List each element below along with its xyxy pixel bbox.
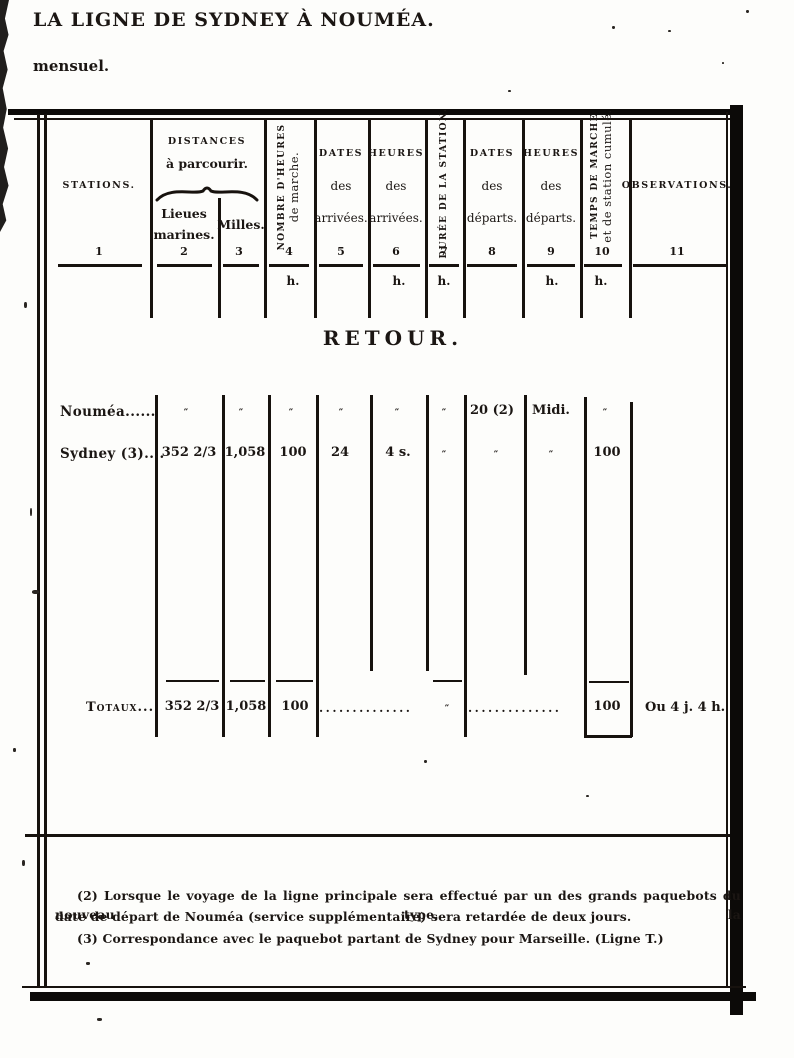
table-border-top: [8, 109, 740, 115]
col-dates-dep-line1: DATES: [470, 148, 514, 159]
cell-noumea-heures-arr: ″: [395, 408, 399, 419]
scan-speck: [32, 590, 39, 594]
total-dot-leader-2: ..............: [468, 701, 580, 715]
cell-sydney-dates-arr: 24: [331, 445, 349, 460]
header-underline: [269, 264, 309, 267]
total-heures-marche: 100: [281, 699, 308, 714]
col-temps-marche-line2: et de station cumulé.: [600, 109, 614, 242]
scan-speck: [13, 748, 16, 752]
col-duree-station-label: DURÉE DE LA STATION.: [439, 108, 449, 259]
col-distances-line1: DISTANCES: [168, 136, 246, 147]
cell-sydney-temps: 100: [593, 445, 620, 460]
col-heures-dep-line2: des: [541, 179, 562, 193]
cell-sydney-duree: ″: [442, 450, 446, 461]
cell-sydney-dates-dep: ″: [494, 450, 498, 461]
scan-edge-artifact: [0, 0, 9, 232]
col-num-5: 5: [337, 245, 345, 258]
col-dates-arr-line2: des: [331, 179, 352, 193]
header-rule: [463, 120, 466, 318]
col-num-3: 3: [235, 245, 243, 258]
col-dates-dep-line2: des: [482, 179, 503, 193]
cell-sydney-heures-dep: ″: [549, 450, 553, 461]
header-rule: [218, 198, 221, 318]
total-box-bottom: [584, 735, 632, 738]
col-heures-dep-line1: HEURES: [523, 148, 579, 159]
total-observation: Ou 4 j. 4 h.: [645, 700, 725, 715]
col-heures-dep-line3: départs.: [526, 211, 576, 225]
document-page: LA LIGNE DE SYDNEY À NOUMÉA. mensuel. ST…: [0, 0, 794, 1058]
col-num-7: 7: [440, 245, 448, 258]
station-sydney: Sydney (3)....: [60, 446, 165, 462]
col-duree-station-text: DURÉE DE LA STATION.: [439, 108, 449, 259]
col-heures-marche-line1: NOMBRE D'HEURES: [277, 124, 287, 251]
total-rule: [433, 680, 462, 682]
cell-sydney-lieues: 352 2/3: [162, 445, 217, 460]
scan-speck: [97, 1018, 102, 1021]
total-duree: ″: [445, 704, 449, 715]
table-border-bottom: [30, 992, 756, 1001]
unit-h-col6: h.: [393, 274, 406, 288]
col-stations-label: STATIONS.: [63, 180, 136, 191]
scan-speck: [746, 10, 749, 13]
table-rule-middle: [25, 834, 730, 837]
cell-sydney-heures-marche: 100: [279, 445, 306, 460]
col-dates-arr-line1: DATES: [319, 148, 363, 159]
table-border-left-inner: [44, 114, 47, 988]
cell-noumea-heures-dep: Midi.: [532, 403, 570, 418]
page-title: LA LIGNE DE SYDNEY À NOUMÉA.: [33, 9, 435, 31]
col-distances-line2: à parcourir.: [166, 156, 248, 171]
scan-speck: [722, 62, 724, 64]
col-heures-arr-line2: des: [386, 179, 407, 193]
section-title-retour: RETOUR.: [323, 326, 463, 350]
header-underline: [157, 264, 212, 267]
cell-sydney-milles: 1,058: [225, 445, 266, 460]
cell-noumea-duree: ″: [442, 408, 446, 419]
col-heures-arr-line3: arrivées.: [369, 211, 422, 225]
unit-h-col10: h.: [595, 274, 608, 288]
cell-noumea-lieues: ″: [184, 408, 188, 419]
body-rule: [524, 395, 527, 675]
cell-sydney-heures-arr: 4 s.: [385, 445, 410, 460]
scan-speck: [86, 962, 90, 965]
col-num-2: 2: [180, 245, 188, 258]
total-rule: [230, 680, 265, 682]
scan-speck: [24, 302, 27, 308]
scan-speck: [22, 860, 25, 866]
cell-noumea-heures-marche: ″: [289, 408, 293, 419]
col-num-8: 8: [488, 245, 496, 258]
header-underline: [633, 264, 728, 267]
cell-noumea-milles: ″: [239, 408, 243, 419]
col-num-1: 1: [95, 245, 103, 258]
header-underline: [373, 264, 420, 267]
unit-h-col7: h.: [438, 274, 451, 288]
header-underline: [467, 264, 517, 267]
header-underline: [527, 264, 575, 267]
col-lieues-line1: Lieues: [161, 206, 207, 221]
table-border-left-outer: [37, 114, 40, 988]
total-lieues: 352 2/3: [165, 699, 220, 714]
unit-h-col9: h.: [546, 274, 559, 288]
col-num-4: 4: [285, 245, 293, 258]
col-num-9: 9: [547, 245, 555, 258]
col-num-11: 11: [669, 245, 684, 258]
col-temps-marche-label: TEMPS DE MARCHE et de station cumulé.: [590, 109, 614, 242]
scan-speck: [424, 760, 427, 763]
body-rule: [316, 395, 319, 737]
unit-h-col4: h.: [287, 274, 300, 288]
distances-brace: [154, 183, 260, 203]
body-rule: [464, 395, 467, 737]
header-rule: [425, 120, 428, 318]
cell-noumea-dates-dep: 20 (2): [470, 403, 514, 418]
body-rule: [426, 395, 429, 671]
header-rule: [150, 120, 153, 318]
total-dot-leader-1: ..............: [319, 701, 423, 715]
footnote-2-line2: date de départ de Nouméa (service supplé…: [55, 907, 741, 926]
body-rule: [268, 395, 271, 737]
body-rule: [370, 395, 373, 671]
col-heures-arr-line1: HEURES: [368, 148, 424, 159]
col-temps-marche-line1: TEMPS DE MARCHE: [590, 109, 600, 242]
totals-label: Totaux...: [86, 700, 154, 715]
total-rule: [166, 680, 219, 682]
page-subtitle: mensuel.: [33, 57, 109, 75]
total-rule: [589, 681, 629, 683]
scan-speck: [668, 30, 671, 32]
col-heures-marche-line2: de marche.: [287, 124, 301, 251]
col-num-6: 6: [392, 245, 400, 258]
total-temps: 100: [593, 699, 620, 714]
table-border-bottom-inner: [22, 986, 746, 988]
col-milles-label: Milles.: [217, 217, 264, 232]
col-lieues-line2: marines.: [153, 227, 214, 242]
col-dates-arr-line3: arrivées.: [314, 211, 367, 225]
col-dates-dep-line3: départs.: [467, 211, 517, 225]
cell-noumea-temps: ″: [603, 408, 607, 419]
table-border-right: [730, 105, 743, 1015]
header-underline: [584, 264, 622, 267]
col-observations-label: OBSERVATIONS.: [622, 180, 733, 191]
col-num-10: 10: [594, 245, 609, 258]
scan-speck: [30, 508, 32, 516]
total-rule: [276, 680, 313, 682]
body-rule: [584, 397, 587, 737]
station-noumea: Nouméa......: [60, 404, 156, 420]
scan-speck: [508, 90, 511, 92]
scan-speck: [586, 795, 589, 797]
header-underline: [319, 264, 363, 267]
col-heures-marche-label: NOMBRE D'HEURES de marche.: [277, 124, 301, 251]
body-rule: [630, 402, 633, 737]
header-underline: [58, 264, 142, 267]
total-milles: 1,058: [226, 699, 267, 714]
header-underline: [223, 264, 259, 267]
header-underline: [429, 264, 459, 267]
header-rule: [629, 120, 632, 318]
cell-noumea-dates-arr: ″: [339, 408, 343, 419]
table-border-right-inner: [726, 112, 728, 986]
scan-speck: [612, 26, 615, 29]
footnote-3: (3) Correspondance avec le paquebot part…: [77, 929, 741, 948]
header-rule: [580, 120, 583, 318]
